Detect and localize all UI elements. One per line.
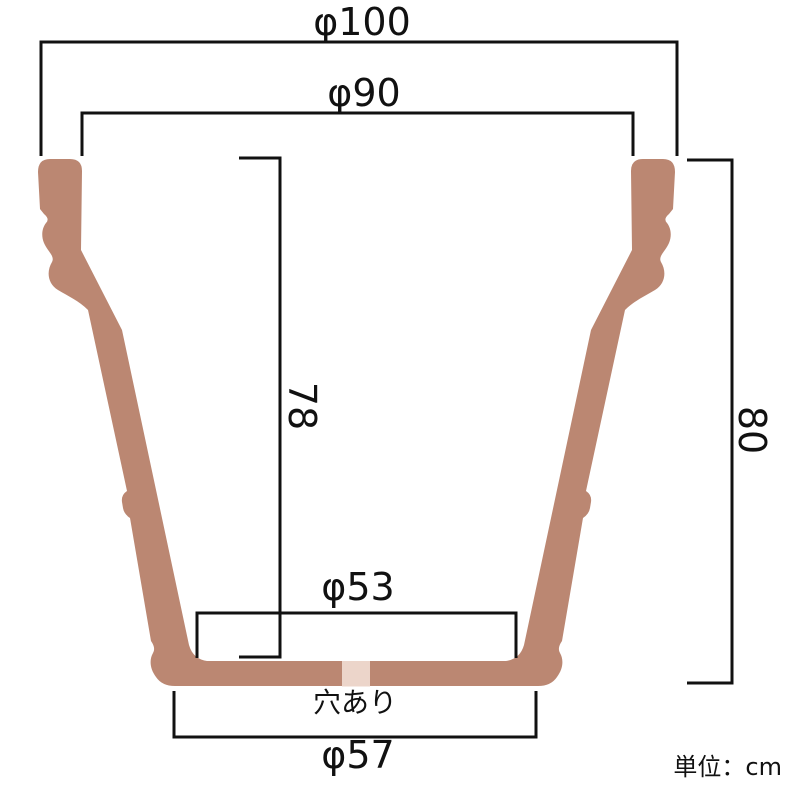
label-top-outer-diameter: φ100: [313, 0, 411, 44]
label-outer-height: 80: [730, 406, 774, 454]
label-inner-bottom-diameter: φ53: [321, 565, 394, 609]
dim-line-outer-height: [687, 160, 732, 683]
dim-line-inner-depth: [239, 158, 280, 657]
dim-line-top-inner-diameter: [82, 113, 633, 156]
pot-dimension-diagram: φ100 φ90 78 80 φ53 穴あり φ57 単位：cm: [0, 0, 800, 800]
dim-line-inner-bottom-diameter: [197, 613, 516, 658]
label-top-inner-diameter: φ90: [327, 71, 400, 115]
diagram-canvas: φ100 φ90 78 80 φ53 穴あり φ57 単位：cm: [0, 0, 800, 800]
dimension-lines: [41, 42, 732, 737]
drain-hole: [342, 661, 370, 687]
label-outer-bottom-diameter: φ57: [321, 733, 394, 777]
label-drainage-hole: 穴あり: [313, 686, 397, 719]
unit-note: 単位：cm: [673, 753, 782, 781]
pot-wall-right-profile: [357, 159, 676, 686]
label-inner-depth: 78: [280, 382, 324, 430]
